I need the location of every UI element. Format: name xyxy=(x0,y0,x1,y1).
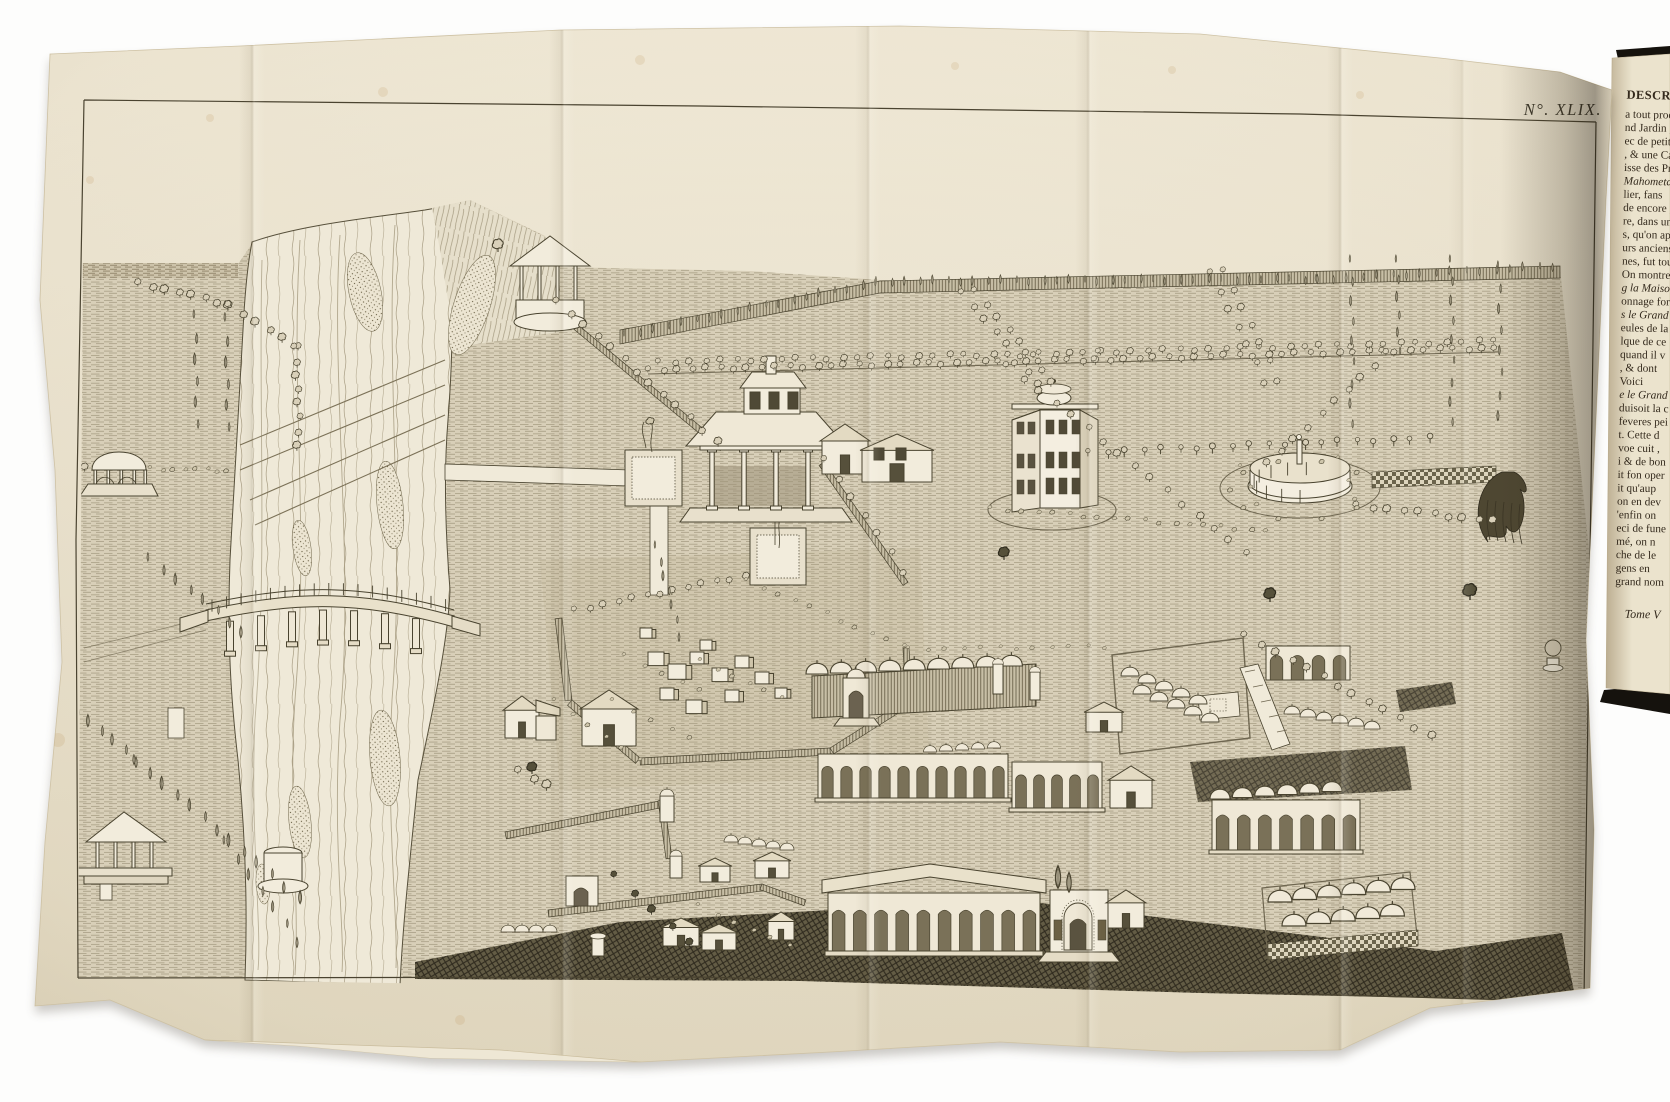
page-text-line: mé, on n xyxy=(1616,536,1656,549)
gutter-curl-shading xyxy=(1500,20,1616,1080)
page-text-line: ec de petits xyxy=(1624,135,1670,148)
page-text-line: onnage fort xyxy=(1621,295,1670,308)
page-text-line: Voici xyxy=(1619,376,1643,388)
page-text-line: gens en xyxy=(1616,562,1651,575)
page-text-line: , & dont xyxy=(1620,362,1658,375)
page-text-line: grand nom xyxy=(1615,576,1664,589)
page-signature: Tome V xyxy=(1625,607,1663,622)
page-text-line: Mahometanes xyxy=(1623,175,1670,188)
page-text-line: g la Maison xyxy=(1621,282,1670,295)
page-text-line: On montre po xyxy=(1622,269,1670,282)
page-text-line: eci de fune xyxy=(1616,522,1666,535)
page-text-line: s, qu'on ap xyxy=(1622,229,1670,242)
page-text-line: de encore , xyxy=(1623,202,1670,215)
page-text-line: , & une Ca xyxy=(1624,149,1670,162)
page-text-line: e le Grand xyxy=(1619,389,1668,402)
engraving xyxy=(55,200,1590,1001)
page-text-line: nd Jardin , xyxy=(1625,122,1670,135)
page-text-line: duisoit la c xyxy=(1619,402,1669,415)
page-text-line: it qu'aup xyxy=(1617,482,1656,495)
page-text-line: a tout proc xyxy=(1625,109,1670,122)
page-text-line: eules de la xyxy=(1621,322,1669,335)
page-text-line: lier, fans xyxy=(1623,189,1662,202)
photo-of-open-book: DESCRITPI Tome V a tout procnd Jardin ,e… xyxy=(0,0,1670,1102)
page-text-line: feveres pei xyxy=(1619,416,1668,429)
foldout-plate: N°. XLIX. xyxy=(35,20,1616,1080)
page-text-line: re, dans un xyxy=(1623,215,1670,228)
page-text-line: s le Grand xyxy=(1621,309,1669,322)
book: DESCRITPI Tome V a tout procnd Jardin ,e… xyxy=(1600,46,1670,714)
page-text-line: it fon oper xyxy=(1617,469,1665,482)
page-heading: DESCRITPI xyxy=(1626,88,1670,103)
page-text-line: isse des Prie xyxy=(1624,162,1670,175)
page-text-line: t. Cette d xyxy=(1618,429,1660,442)
page-text-line: nes, fut tou xyxy=(1622,256,1670,269)
page-text-line: urs anciens xyxy=(1622,242,1670,255)
engraved-plate-photo: DESCRITPI Tome V a tout procnd Jardin ,e… xyxy=(0,0,1670,1102)
page-text-line: on en dev xyxy=(1617,496,1662,509)
page-text-line: quand il v xyxy=(1620,349,1666,362)
page-text-line: 'enfin on xyxy=(1617,509,1657,522)
page-text-line: i & de bon xyxy=(1618,456,1667,469)
page-text-line: lque de ce xyxy=(1620,335,1666,348)
page-text-line: che de le xyxy=(1616,549,1656,562)
page-text-line: voe cuit , xyxy=(1618,442,1660,455)
